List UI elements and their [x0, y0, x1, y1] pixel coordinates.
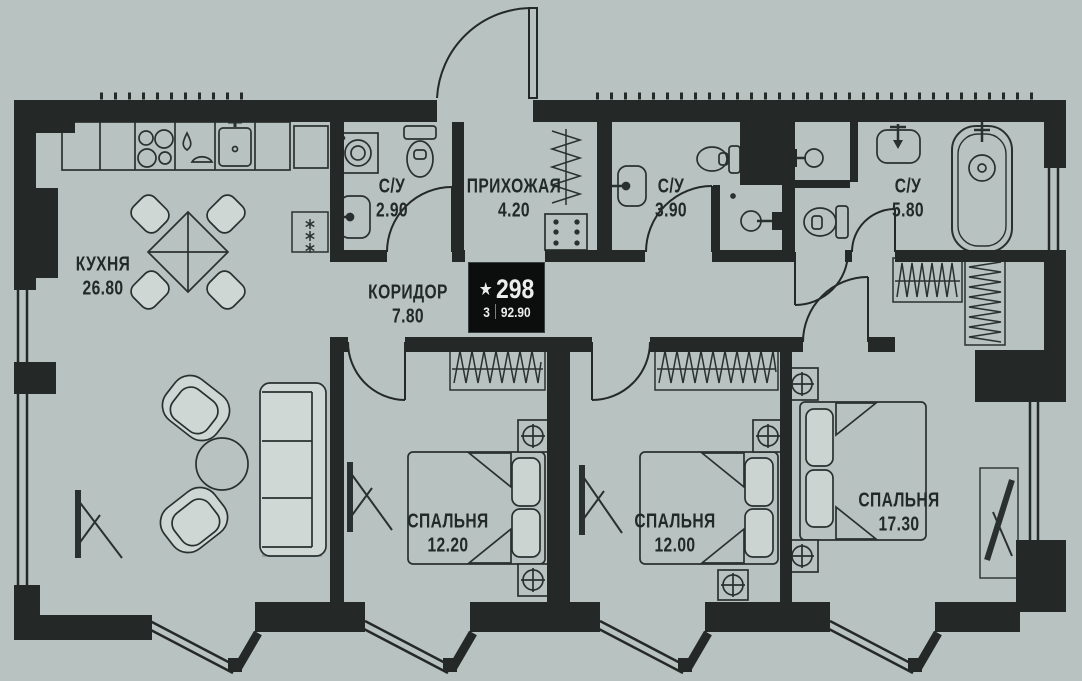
room-label-kitchen: КУХНЯ 26.80	[76, 253, 130, 302]
kitchen-counter	[62, 122, 290, 170]
room-name: КОРИДОР	[368, 281, 448, 305]
toilet-icon	[404, 126, 436, 177]
nightstand-lamp-icon	[518, 564, 548, 596]
pantry-shelf-icon	[292, 212, 328, 253]
room-name: ПРИХОЖАЯ	[467, 175, 561, 199]
badge-bottom-row: 3 92.90	[483, 304, 530, 320]
room-area: 17.30	[858, 513, 939, 537]
room-area: 3.90	[655, 199, 687, 223]
room-label-bathroom-3: С/У 5.80	[892, 175, 924, 224]
badge-divider	[494, 304, 495, 319]
room-name: С/У	[376, 175, 408, 199]
floor-plan-drawing	[0, 0, 1082, 681]
room-label-bedroom-2: СПАЛЬНЯ 12.00	[634, 510, 715, 559]
room-area: 12.00	[634, 534, 715, 558]
room-name: С/У	[892, 175, 924, 199]
rooms-count: 3	[483, 304, 490, 320]
nightstand-lamp-icon	[718, 570, 748, 600]
toilet-icon	[804, 206, 848, 238]
room-label-corridor: КОРИДОР 7.80	[368, 281, 448, 330]
wardrobe-icon	[655, 347, 778, 390]
room-area: 26.80	[76, 277, 130, 301]
room-label-hallway: ПРИХОЖАЯ 4.20	[467, 175, 561, 224]
wardrobe-icon	[965, 258, 1005, 345]
star-icon: ★	[479, 280, 493, 298]
coffee-table	[196, 438, 248, 490]
room-area: 7.80	[368, 305, 448, 329]
total-area: 92.90	[500, 304, 530, 320]
room-area: 12.20	[407, 534, 488, 558]
nightstand-lamp-icon	[753, 420, 783, 452]
badge-top-row: ★ 298	[479, 276, 534, 303]
room-area: 4.20	[467, 199, 561, 223]
wardrobe-icon	[893, 258, 962, 302]
room-label-bedroom-3: СПАЛЬНЯ 17.30	[858, 489, 939, 538]
fridge	[294, 126, 328, 168]
room-label-bathroom-1: С/У 2.90	[376, 175, 408, 224]
wardrobe-icon	[450, 347, 545, 390]
apartment-number: 298	[496, 276, 534, 303]
room-label-bedroom-1: СПАЛЬНЯ 12.20	[407, 510, 488, 559]
room-name: СПАЛЬНЯ	[858, 489, 939, 513]
room-name: СПАЛЬНЯ	[407, 510, 488, 534]
wash-basin-icon	[877, 124, 920, 163]
room-area: 5.80	[892, 199, 924, 223]
room-name: СПАЛЬНЯ	[634, 510, 715, 534]
room-name: КУХНЯ	[76, 253, 130, 277]
apartment-badge[interactable]: ★ 298 3 92.90	[468, 262, 545, 333]
room-label-bathroom-2: С/У 3.90	[655, 175, 687, 224]
room-name: С/У	[655, 175, 687, 199]
nightstand-lamp-icon	[518, 420, 548, 452]
bathtub-icon	[952, 122, 1012, 252]
room-area: 2.90	[376, 199, 408, 223]
floor-plan: КУХНЯ 26.80 С/У 2.90 ПРИХОЖАЯ 4.20 С/У 3…	[0, 0, 1082, 681]
sofa	[260, 383, 326, 557]
toilet-icon	[697, 146, 740, 173]
